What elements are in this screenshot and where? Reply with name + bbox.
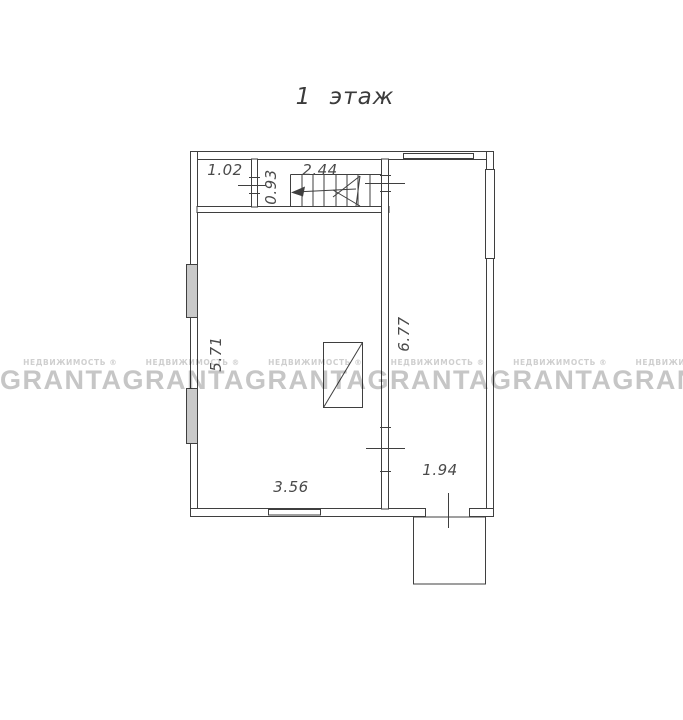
interior-walls <box>197 159 389 509</box>
window-bottom <box>269 510 321 516</box>
window-left-upper <box>187 265 198 318</box>
window-top <box>404 154 474 159</box>
dim-hall-width: 1.94 <box>422 461 457 479</box>
dim-living-room-width: 3.56 <box>273 478 308 496</box>
stair-arrow-head <box>291 187 305 197</box>
stove-symbol <box>324 343 363 408</box>
staircase <box>291 175 382 207</box>
window-right <box>486 170 495 259</box>
floor-plan-drawing <box>0 0 683 720</box>
floor-plan-page: 1 этаж <box>0 0 683 720</box>
dim-stair-corridor-width: 0.93 <box>262 169 280 204</box>
wall-stair-strip <box>197 207 389 213</box>
wall-entry-room <box>252 159 258 207</box>
wall-hall-partition <box>382 159 389 509</box>
dim-entry-room-width: 1.02 <box>207 161 242 179</box>
dim-stair-length: 2.44 <box>302 161 337 179</box>
dim-hall-depth: 6.77 <box>395 316 413 351</box>
opening-exterior-gap <box>426 508 470 517</box>
wall-left <box>191 152 198 517</box>
window-left-lower <box>187 389 198 444</box>
porch-outline <box>414 517 486 584</box>
dim-living-room-depth: 5.71 <box>207 336 225 371</box>
